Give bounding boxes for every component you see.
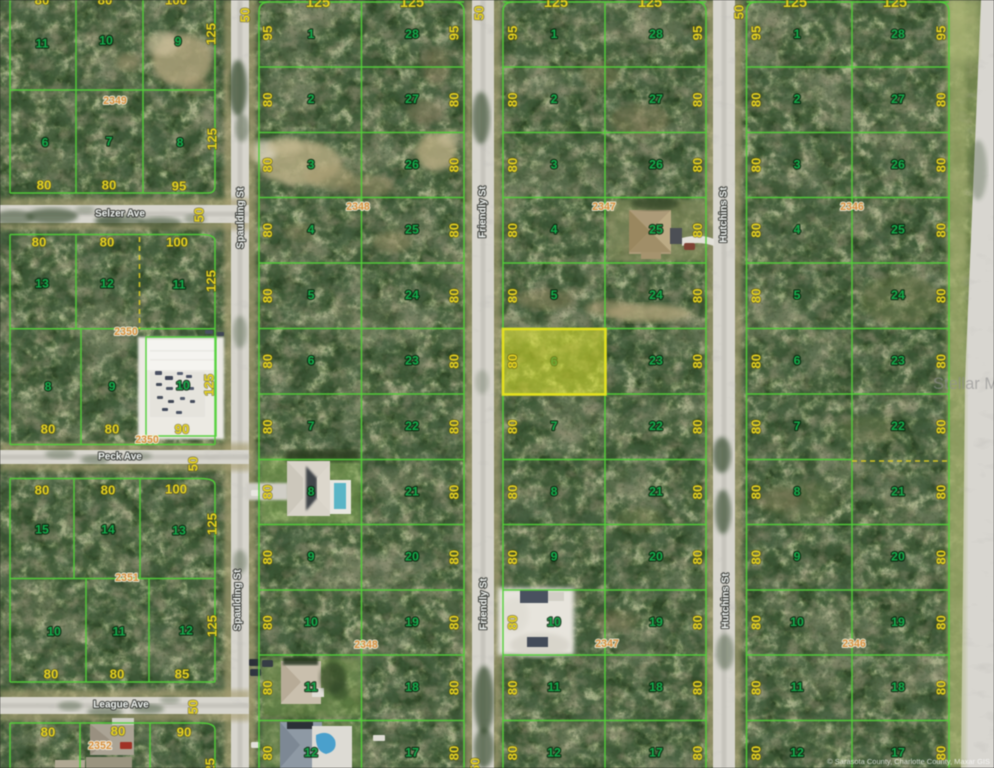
- svg-text:21: 21: [649, 484, 663, 498]
- svg-text:80: 80: [32, 234, 47, 249]
- svg-text:24: 24: [891, 288, 905, 302]
- svg-text:80: 80: [37, 177, 52, 192]
- svg-text:6: 6: [551, 355, 558, 369]
- svg-text:14: 14: [101, 522, 115, 536]
- svg-text:90: 90: [175, 421, 190, 436]
- svg-text:2346: 2346: [842, 638, 866, 650]
- svg-text:5: 5: [794, 288, 801, 302]
- svg-text:19: 19: [405, 615, 419, 629]
- svg-text:80: 80: [933, 92, 948, 107]
- svg-text:80: 80: [446, 746, 461, 761]
- svg-text:80: 80: [260, 354, 275, 369]
- svg-text:80: 80: [933, 419, 948, 434]
- svg-text:24: 24: [405, 288, 419, 302]
- svg-text:28: 28: [405, 27, 419, 41]
- svg-text:18: 18: [891, 680, 905, 694]
- svg-text:125: 125: [203, 270, 218, 292]
- svg-text:125: 125: [783, 0, 807, 11]
- svg-text:80: 80: [933, 354, 948, 369]
- svg-text:80: 80: [933, 158, 948, 173]
- svg-text:80: 80: [933, 288, 948, 303]
- svg-text:80: 80: [105, 421, 120, 436]
- svg-text:2348: 2348: [354, 639, 378, 651]
- svg-text:125: 125: [204, 513, 219, 535]
- svg-text:80: 80: [933, 485, 948, 500]
- svg-text:80: 80: [690, 615, 705, 630]
- svg-text:7: 7: [106, 134, 113, 148]
- svg-text:80: 80: [446, 615, 461, 630]
- svg-text:2352: 2352: [88, 740, 112, 752]
- svg-text:10: 10: [790, 615, 804, 629]
- svg-text:Friendly St: Friendly St: [478, 185, 489, 237]
- svg-text:125: 125: [204, 615, 219, 637]
- svg-text:9: 9: [794, 550, 801, 564]
- svg-text:80: 80: [505, 615, 520, 630]
- svg-text:80: 80: [260, 615, 275, 630]
- svg-text:10: 10: [547, 615, 561, 629]
- svg-text:8: 8: [308, 484, 315, 498]
- svg-text:9: 9: [551, 550, 558, 564]
- svg-text:50: 50: [467, 758, 482, 768]
- svg-text:80: 80: [505, 288, 520, 303]
- svg-text:9: 9: [308, 550, 315, 564]
- svg-text:4: 4: [551, 223, 558, 237]
- svg-text:11: 11: [36, 36, 49, 50]
- svg-text:80: 80: [690, 354, 705, 369]
- svg-text:20: 20: [405, 550, 419, 564]
- svg-text:4: 4: [794, 223, 801, 237]
- svg-text:80: 80: [260, 158, 275, 173]
- svg-text:20: 20: [891, 550, 905, 564]
- svg-text:80: 80: [690, 223, 705, 238]
- svg-text:8: 8: [551, 484, 558, 498]
- svg-text:80: 80: [101, 482, 116, 497]
- svg-text:12: 12: [790, 745, 804, 759]
- svg-text:12: 12: [100, 276, 114, 290]
- svg-text:80: 80: [41, 724, 56, 739]
- svg-text:25: 25: [891, 223, 905, 237]
- svg-text:12: 12: [304, 745, 318, 759]
- svg-text:8: 8: [794, 484, 801, 498]
- svg-text:27: 27: [405, 92, 419, 106]
- svg-text:80: 80: [748, 158, 763, 173]
- svg-text:95: 95: [446, 26, 461, 41]
- svg-text:2350: 2350: [135, 434, 159, 446]
- svg-text:1: 1: [551, 27, 558, 41]
- svg-text:95: 95: [172, 178, 187, 193]
- svg-text:23: 23: [649, 354, 663, 368]
- svg-text:80: 80: [446, 288, 461, 303]
- svg-text:95: 95: [933, 26, 948, 41]
- svg-text:2: 2: [551, 92, 558, 106]
- svg-text:22: 22: [891, 419, 905, 433]
- svg-text:22: 22: [405, 419, 419, 433]
- svg-text:80: 80: [260, 485, 275, 500]
- svg-text:26: 26: [891, 157, 905, 171]
- svg-text:11: 11: [791, 680, 804, 694]
- svg-text:10: 10: [47, 624, 61, 638]
- svg-text:95: 95: [748, 26, 763, 41]
- svg-text:80: 80: [748, 419, 763, 434]
- svg-text:100: 100: [165, 0, 187, 7]
- svg-text:15: 15: [35, 522, 49, 536]
- svg-text:24: 24: [649, 288, 663, 302]
- svg-text:80: 80: [446, 158, 461, 173]
- svg-text:18: 18: [649, 680, 663, 694]
- svg-text:1: 1: [308, 27, 315, 41]
- svg-text:22: 22: [649, 419, 663, 433]
- svg-text:Spaulding St: Spaulding St: [236, 187, 247, 249]
- svg-text:80: 80: [690, 419, 705, 434]
- svg-text:19: 19: [649, 615, 663, 629]
- svg-text:80: 80: [260, 288, 275, 303]
- svg-text:28: 28: [649, 27, 663, 41]
- svg-text:80: 80: [505, 92, 520, 107]
- svg-text:95: 95: [505, 26, 520, 41]
- svg-text:80: 80: [748, 288, 763, 303]
- svg-text:7: 7: [794, 419, 801, 433]
- svg-text:80: 80: [260, 223, 275, 238]
- svg-text:80: 80: [260, 550, 275, 565]
- svg-text:95: 95: [690, 26, 705, 41]
- svg-text:80: 80: [690, 288, 705, 303]
- svg-text:3: 3: [551, 157, 558, 171]
- svg-text:80: 80: [41, 421, 56, 436]
- svg-text:2: 2: [308, 92, 315, 106]
- svg-text:10: 10: [304, 615, 318, 629]
- svg-text:80: 80: [690, 158, 705, 173]
- svg-text:125: 125: [202, 758, 217, 768]
- svg-text:80: 80: [35, 0, 50, 7]
- svg-text:23: 23: [405, 354, 419, 368]
- svg-text:80: 80: [110, 666, 125, 681]
- svg-text:80: 80: [102, 177, 117, 192]
- svg-text:80: 80: [35, 482, 50, 497]
- svg-text:90: 90: [177, 724, 192, 739]
- svg-text:12: 12: [547, 745, 561, 759]
- svg-text:9: 9: [175, 34, 182, 48]
- svg-text:2347: 2347: [595, 638, 619, 650]
- svg-text:2346: 2346: [840, 201, 864, 213]
- svg-text:3: 3: [794, 157, 801, 171]
- svg-text:50: 50: [191, 208, 206, 223]
- svg-text:26: 26: [649, 157, 663, 171]
- svg-text:Stellar MLS: Stellar MLS: [933, 375, 994, 393]
- svg-text:80: 80: [446, 419, 461, 434]
- svg-text:125: 125: [203, 23, 218, 45]
- svg-text:125: 125: [544, 0, 568, 11]
- svg-text:80: 80: [260, 746, 275, 761]
- svg-text:2347: 2347: [592, 201, 616, 213]
- svg-text:50: 50: [185, 457, 200, 472]
- svg-text:80: 80: [505, 746, 520, 761]
- svg-text:80: 80: [98, 0, 113, 7]
- svg-text:Hutchins St: Hutchins St: [719, 187, 730, 243]
- svg-text:50: 50: [237, 8, 252, 23]
- svg-text:80: 80: [505, 485, 520, 500]
- svg-text:80: 80: [260, 419, 275, 434]
- svg-text:4: 4: [308, 223, 315, 237]
- svg-text:27: 27: [649, 92, 663, 106]
- svg-text:17: 17: [649, 745, 663, 759]
- svg-text:80: 80: [748, 615, 763, 630]
- svg-text:Friendly St: Friendly St: [479, 577, 490, 629]
- svg-text:80: 80: [111, 723, 126, 738]
- svg-text:Hutchins St: Hutchins St: [721, 573, 732, 629]
- svg-text:2348: 2348: [346, 201, 370, 213]
- svg-text:80: 80: [748, 92, 763, 107]
- svg-text:7: 7: [551, 419, 558, 433]
- svg-text:13: 13: [35, 276, 49, 290]
- svg-text:80: 80: [505, 354, 520, 369]
- svg-text:80: 80: [505, 158, 520, 173]
- svg-text:80: 80: [100, 234, 115, 249]
- svg-text:80: 80: [446, 485, 461, 500]
- svg-text:6: 6: [42, 135, 49, 149]
- svg-text:6: 6: [794, 354, 801, 368]
- svg-text:Selzer Ave: Selzer Ave: [95, 209, 145, 220]
- svg-text:80: 80: [748, 746, 763, 761]
- svg-text:125: 125: [306, 0, 330, 11]
- svg-text:80: 80: [690, 550, 705, 565]
- svg-text:80: 80: [748, 485, 763, 500]
- svg-text:80: 80: [690, 746, 705, 761]
- svg-text:80: 80: [44, 666, 59, 681]
- svg-text:17: 17: [405, 745, 419, 759]
- svg-text:2349: 2349: [103, 95, 127, 107]
- svg-text:80: 80: [505, 680, 520, 695]
- svg-text:5: 5: [551, 288, 558, 302]
- svg-text:2351: 2351: [115, 572, 139, 584]
- svg-text:18: 18: [405, 680, 419, 694]
- svg-text:80: 80: [748, 223, 763, 238]
- svg-text:80: 80: [933, 680, 948, 695]
- svg-text:80: 80: [446, 223, 461, 238]
- svg-text:27: 27: [891, 92, 905, 106]
- svg-text:80: 80: [446, 550, 461, 565]
- svg-text:11: 11: [305, 680, 318, 694]
- svg-text:80: 80: [505, 223, 520, 238]
- svg-text:23: 23: [891, 354, 905, 368]
- svg-text:125: 125: [638, 0, 662, 11]
- svg-text:80: 80: [748, 550, 763, 565]
- svg-text:125: 125: [883, 0, 907, 11]
- svg-text:8: 8: [177, 135, 184, 149]
- svg-text:80: 80: [748, 680, 763, 695]
- svg-text:25: 25: [649, 223, 663, 237]
- svg-text:25: 25: [405, 223, 419, 237]
- svg-text:9: 9: [109, 379, 116, 393]
- svg-text:80: 80: [933, 550, 948, 565]
- svg-text:19: 19: [891, 615, 905, 629]
- svg-text:13: 13: [172, 523, 186, 537]
- svg-text:80: 80: [260, 680, 275, 695]
- svg-text:125: 125: [400, 0, 424, 11]
- svg-text:125: 125: [204, 128, 219, 150]
- svg-text:80: 80: [690, 680, 705, 695]
- svg-text:2: 2: [794, 92, 801, 106]
- svg-text:© Sarasota County, Charlotte C: © Sarasota County, Charlotte County, Max…: [827, 757, 990, 766]
- svg-text:Peck Ave: Peck Ave: [98, 452, 142, 463]
- svg-text:3: 3: [308, 157, 315, 171]
- svg-text:21: 21: [405, 484, 419, 498]
- svg-text:7: 7: [308, 419, 315, 433]
- svg-text:80: 80: [505, 419, 520, 434]
- svg-text:125: 125: [201, 374, 216, 396]
- svg-text:5: 5: [308, 288, 315, 302]
- svg-text:10: 10: [176, 378, 190, 392]
- svg-text:11: 11: [113, 624, 126, 638]
- svg-text:21: 21: [891, 484, 905, 498]
- svg-text:20: 20: [649, 550, 663, 564]
- svg-text:Spaulding St: Spaulding St: [233, 569, 244, 631]
- svg-text:80: 80: [690, 92, 705, 107]
- svg-text:10: 10: [99, 33, 113, 47]
- svg-text:28: 28: [891, 27, 905, 41]
- svg-text:100: 100: [166, 234, 188, 249]
- svg-text:50: 50: [731, 5, 746, 20]
- svg-text:12: 12: [179, 623, 193, 637]
- svg-text:80: 80: [505, 550, 520, 565]
- svg-text:100: 100: [165, 481, 187, 496]
- svg-text:50: 50: [185, 700, 200, 715]
- svg-text:85: 85: [175, 666, 190, 681]
- svg-text:6: 6: [308, 354, 315, 368]
- svg-text:1: 1: [794, 27, 801, 41]
- svg-text:11: 11: [173, 277, 186, 291]
- svg-text:80: 80: [933, 223, 948, 238]
- svg-text:League Ave: League Ave: [93, 700, 149, 711]
- svg-text:80: 80: [446, 354, 461, 369]
- svg-text:26: 26: [405, 157, 419, 171]
- svg-text:80: 80: [446, 680, 461, 695]
- svg-text:80: 80: [260, 92, 275, 107]
- svg-text:50: 50: [471, 6, 486, 21]
- svg-text:11: 11: [548, 680, 561, 694]
- svg-text:95: 95: [260, 26, 275, 41]
- svg-text:2350: 2350: [114, 326, 138, 338]
- svg-text:8: 8: [45, 379, 52, 393]
- svg-text:80: 80: [933, 615, 948, 630]
- svg-text:80: 80: [446, 92, 461, 107]
- svg-text:80: 80: [690, 485, 705, 500]
- svg-text:80: 80: [748, 354, 763, 369]
